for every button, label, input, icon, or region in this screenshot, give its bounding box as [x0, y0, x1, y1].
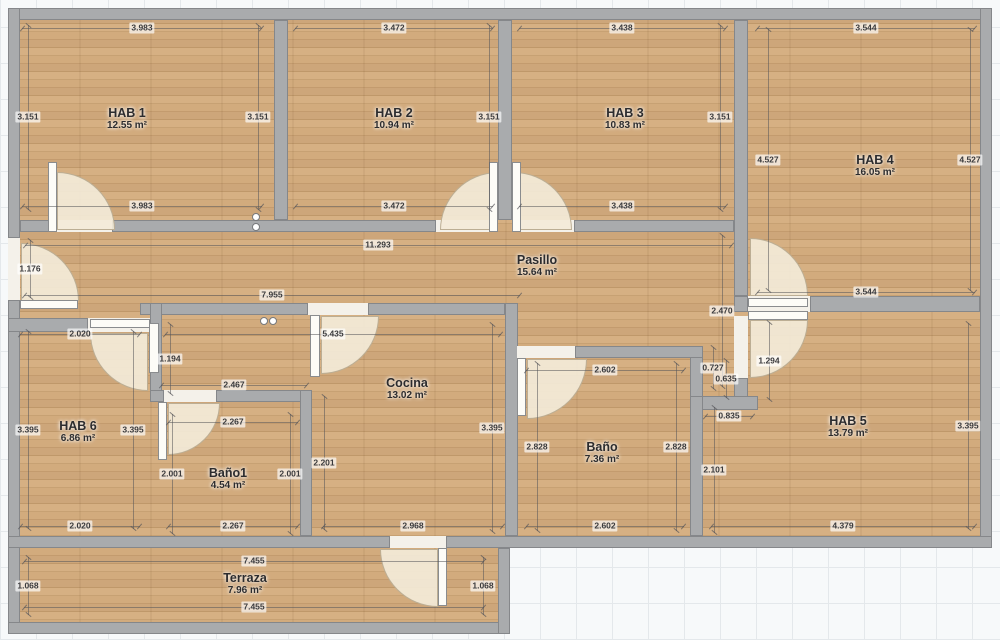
wall-hab5-left-lower	[690, 396, 703, 536]
wall-symbol-circle	[269, 317, 277, 325]
door-leaf-hab3	[512, 162, 521, 232]
door-leaf-bano	[517, 358, 526, 416]
door-leaf-terraza	[438, 548, 447, 606]
door-leaf-cocina	[310, 315, 320, 377]
wall-outer-top	[8, 8, 992, 20]
door-leaf-hab6	[90, 319, 150, 328]
wall-bano1-top-a	[150, 390, 164, 402]
door-leaf-bano1	[158, 402, 167, 460]
floor-plan-canvas: HAB 1 12.55 m² HAB 2 10.94 m² HAB 3 10.8…	[0, 0, 1000, 640]
wall-cocina-right	[505, 303, 518, 536]
wall-hab3-hab4	[734, 20, 748, 296]
wall-bano1-top-b	[216, 390, 312, 402]
wall-terraza-right	[498, 548, 510, 634]
wall-hab1-hab2	[274, 20, 288, 220]
door-leaf-hab5	[748, 311, 808, 320]
wall-cocina-top-b	[368, 303, 505, 315]
wall-hab4-bottom-a	[734, 296, 748, 312]
wall-outer-left-upper	[8, 8, 20, 238]
door-leaf-hab4	[748, 298, 808, 307]
wall-hab2-hab3	[498, 20, 512, 220]
wall-pasillo-top-b	[112, 220, 436, 232]
wall-outer-right	[980, 8, 992, 548]
door-opening-cocina	[308, 303, 368, 315]
wall-bano-top-b	[575, 346, 703, 358]
wall-hab4-bottom-b	[810, 296, 980, 312]
door-leaf-entrance	[20, 300, 78, 309]
door-leaf-hab1	[48, 162, 57, 232]
wall-symbol-circle	[252, 223, 260, 231]
door-leaf-hab2	[489, 162, 498, 232]
wall-cocina-top-a	[140, 303, 308, 315]
door-opening-hab5	[734, 316, 748, 378]
wall-pasillo-top-c	[574, 220, 734, 232]
door-opening-entrance	[8, 238, 20, 300]
wall-pasillo-top-a	[20, 220, 50, 232]
wall-hab6-top-a	[8, 318, 88, 332]
wall-bano1-right	[300, 390, 312, 536]
wall-symbol-circle	[252, 213, 260, 221]
door-opening-bano	[517, 346, 575, 358]
wall-symbol-circle	[260, 317, 268, 325]
wall-bottom-main-left	[8, 536, 390, 548]
wall-terraza-bottom	[8, 622, 510, 634]
wall-step-horizontal	[700, 396, 758, 410]
wall-outer-left-lower	[8, 300, 20, 634]
wall-bottom-main-right	[446, 536, 992, 548]
door-leaf-vestibule	[149, 323, 159, 373]
door-opening-terraza	[390, 536, 446, 548]
door-opening-bano1	[164, 390, 216, 402]
